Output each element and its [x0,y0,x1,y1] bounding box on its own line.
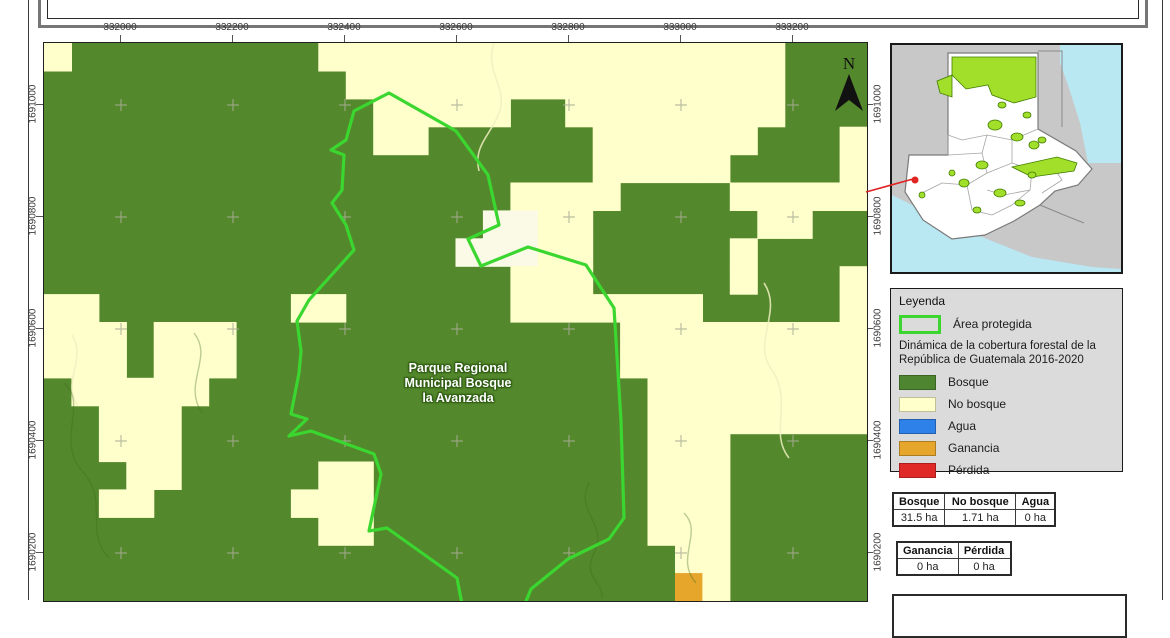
axis-tick [36,552,43,553]
legend-item-label: Ganancia [948,441,999,455]
legend-item-no-bosque: No bosque [899,393,1114,415]
axis-label: 332400 [327,22,360,33]
legend-item-area-protegida: Área protegida [899,313,1114,335]
axis-label: 332600 [439,22,472,33]
title-box [38,0,1148,28]
legend-panel: Leyenda Área protegida Dinámica de la co… [890,288,1123,472]
header-cell: No bosque [945,493,1016,510]
axis-label: 332200 [215,22,248,33]
axis-label: 1690600 [873,309,884,348]
protected-area-swatch [899,315,941,334]
belize-border [1038,51,1062,127]
value-cell: 0 ha [958,559,1011,576]
page-border-right [1162,0,1163,600]
description-line: Dinámica de la cobertura forestal de la [899,340,1096,352]
legend-item-perdida: Pérdida [899,459,1114,481]
axis-label: 332800 [551,22,584,33]
main-map: N Parque Regional Municipal Bosque la Av… [43,42,868,602]
cover-stats-table: Bosque No bosque Agua 31.5 ha 1.71 ha 0 … [892,492,1056,527]
legend-item-ganancia: Ganancia [899,437,1114,459]
protected-area-name-label: Parque Regional Municipal Bosque la Avan… [374,361,542,406]
axis-label: 1690200 [873,533,884,572]
header-cell: Ganancia [897,542,958,559]
bottom-info-box [892,594,1127,638]
overview-inset-map [890,43,1123,274]
table-header-row: Ganancia Pérdida [897,542,1011,559]
axis-label: 332000 [103,22,136,33]
svg-text:N: N [843,54,855,73]
change-stats-table: Ganancia Pérdida 0 ha 0 ha [896,541,1012,576]
value-cell: 0 ha [897,559,958,576]
honduras-border [1040,205,1084,223]
header-cell: Bosque [893,493,945,510]
axis-tick [36,440,43,441]
legend-title: Leyenda [899,294,1114,308]
value-cell: 31.5 ha [893,510,945,527]
axis-label: 1690800 [873,197,884,236]
location-indicator-dot [912,177,919,184]
inset-canvas [892,45,1121,272]
legend-item-label: Bosque [948,375,989,389]
axis-tick [36,104,43,105]
axis-label: 1691000 [873,85,884,124]
description-line: República de Guatemala 2016-2020 [899,354,1084,366]
legend-item-bosque: Bosque [899,371,1114,393]
axis-label: 1690400 [873,421,884,460]
axis-label: 333200 [775,22,808,33]
map-canvas: N [44,43,867,601]
map-layout-page: { "axes": { "top": { "labels": ["332000"… [0,0,1170,600]
perdida-swatch [899,463,936,478]
axis-tick [232,35,233,42]
caribbean-sea [1060,45,1121,163]
axis-tick [456,35,457,42]
axis-tick [36,328,43,329]
legend-item-label: Agua [948,419,976,433]
legend-item-label: No bosque [948,397,1006,411]
legend-layer-description: Dinámica de la cobertura forestal de la … [899,339,1114,367]
no-bosque-swatch [899,397,936,412]
axis-tick [792,35,793,42]
axis-label: 333000 [663,22,696,33]
value-cell: 0 ha [1016,510,1056,527]
axis-tick [344,35,345,42]
legend-item-label: Área protegida [953,317,1032,331]
value-cell: 1.71 ha [945,510,1016,527]
table-value-row: 0 ha 0 ha [897,559,1011,576]
title-box-inner-border [47,0,1139,19]
ganancia-swatch [899,441,936,456]
table-header-row: Bosque No bosque Agua [893,493,1055,510]
label-line: Municipal Bosque [405,376,512,390]
header-cell: Pérdida [958,542,1011,559]
table-value-row: 31.5 ha 1.71 ha 0 ha [893,510,1055,527]
axis-tick [568,35,569,42]
header-cell: Agua [1016,493,1056,510]
axis-tick [120,35,121,42]
legend-item-label: Pérdida [948,463,989,477]
legend-item-agua: Agua [899,415,1114,437]
bosque-swatch [899,375,936,390]
label-line: Parque Regional [409,361,508,375]
axis-tick [36,216,43,217]
agua-swatch [899,419,936,434]
label-line: la Avanzada [422,391,493,405]
axis-tick [680,35,681,42]
